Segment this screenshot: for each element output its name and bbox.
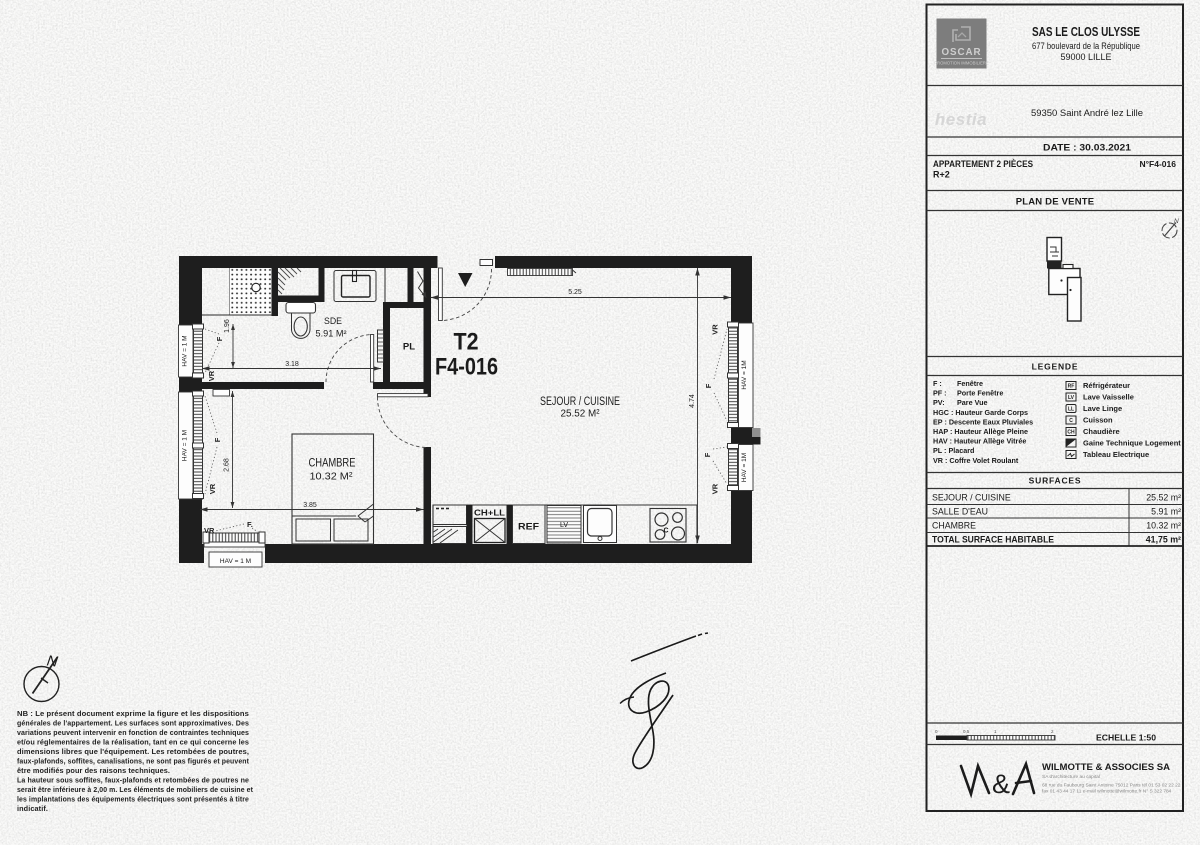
svg-text:variations peuvent intervenir: variations peuvent intervenir en fonctio… <box>17 728 249 737</box>
svg-text:10.32 M²: 10.32 M² <box>310 471 354 483</box>
svg-text:HAV = 1M: HAV = 1M <box>741 453 748 482</box>
svg-text:dimensions libres que l'équipe: dimensions libres que l'équipement. Les … <box>17 747 249 756</box>
svg-text:HAV = 1 M: HAV = 1 M <box>220 558 251 565</box>
svg-text:2.68: 2.68 <box>224 458 231 472</box>
svg-text:LEGENDE: LEGENDE <box>1032 362 1079 372</box>
svg-text:SEJOUR / CUISINE: SEJOUR / CUISINE <box>932 493 1011 503</box>
svg-text:CHAMBRE: CHAMBRE <box>309 458 356 470</box>
svg-text:SEJOUR / CUISINE: SEJOUR / CUISINE <box>540 396 620 408</box>
svg-text:PL: PL <box>403 342 415 353</box>
svg-text:LL: LL <box>1068 407 1074 413</box>
svg-text:DATE : 30.03.2021: DATE : 30.03.2021 <box>1043 143 1132 154</box>
svg-text:VR: VR <box>207 370 216 381</box>
svg-text:CH+LL: CH+LL <box>474 509 505 518</box>
svg-text:APPARTEMENT 2 PIÈCES: APPARTEMENT 2 PIÈCES <box>933 159 1033 169</box>
svg-text:F.: F. <box>247 520 253 529</box>
svg-text:les implantations des équipeme: les implantations des équipements électr… <box>17 795 249 804</box>
svg-text:HAV = 1 M: HAV = 1 M <box>182 430 189 461</box>
svg-text:générales de l'appartement. Le: générales de l'appartement. Les surfaces… <box>17 719 249 728</box>
svg-text:serait être inférieure à 2,00: serait être inférieure à 2,00 m. Les élé… <box>17 785 253 794</box>
svg-text:VR: VR <box>208 483 217 494</box>
svg-text:HAV = 1 M: HAV = 1 M <box>182 335 189 366</box>
svg-text:Lave Vaisselle: Lave Vaisselle <box>1083 393 1134 402</box>
svg-text:5.91 m²: 5.91 m² <box>1151 507 1181 517</box>
svg-text:F4-016: F4-016 <box>435 354 498 381</box>
svg-text:0,5: 0,5 <box>963 729 970 734</box>
svg-text:NB : Le présent document expri: NB : Le présent document exprime la figu… <box>17 709 249 718</box>
svg-text:PLAN DE VENTE: PLAN DE VENTE <box>1016 197 1095 208</box>
svg-text:3.85: 3.85 <box>303 502 317 509</box>
svg-text:TOTAL SURFACE HABITABLE: TOTAL SURFACE HABITABLE <box>932 535 1054 545</box>
svg-text:Tableau Electrique: Tableau Electrique <box>1083 450 1149 459</box>
svg-text:&: & <box>992 769 1010 799</box>
svg-text:PROMOTION IMMOBILIERE: PROMOTION IMMOBILIERE <box>934 61 989 66</box>
svg-text:C: C <box>1069 418 1073 424</box>
svg-text:Cuisson: Cuisson <box>1083 416 1113 425</box>
svg-text:VR: VR <box>711 483 720 494</box>
svg-text:HAV : Hauteur Allège Vitrée: HAV : Hauteur Allège Vitrée <box>933 437 1026 446</box>
svg-text:59350 Saint André lez Lille: 59350 Saint André lez Lille <box>1031 108 1143 119</box>
svg-text:SA d'architecture au capital: SA d'architecture au capital <box>1042 774 1100 780</box>
svg-text:VR: VR <box>711 324 720 335</box>
svg-text:41,75 m²: 41,75 m² <box>1146 535 1181 545</box>
svg-text:VR : Coffre Volet Roulant: VR : Coffre Volet Roulant <box>933 456 1019 465</box>
svg-text:F :Fenêtre: F :Fenêtre <box>933 379 983 388</box>
svg-text:faux-plafonds, soffites, canal: faux-plafonds, soffites, canalisations, … <box>17 757 249 766</box>
svg-text:être modifiés pour des raisons: être modifiés pour des raisons technique… <box>17 766 170 775</box>
svg-text:Lave Linge: Lave Linge <box>1083 404 1122 413</box>
svg-text:et/ou réglementaires de la réa: et/ou réglementaires de la réalisation, … <box>17 738 249 747</box>
svg-text:PV:Pare Vue: PV:Pare Vue <box>933 398 988 407</box>
svg-text:REF: REF <box>518 522 540 532</box>
svg-text:indicatif.: indicatif. <box>17 804 48 813</box>
svg-text:RF: RF <box>1068 384 1075 390</box>
svg-text:hestia: hestia <box>935 110 987 129</box>
svg-text:LV: LV <box>560 522 568 529</box>
svg-text:T2: T2 <box>454 329 479 356</box>
svg-text:HAP : Hauteur Allège Pleine: HAP : Hauteur Allège Pleine <box>933 427 1028 436</box>
svg-text:N: N <box>1174 218 1179 225</box>
svg-text:LV: LV <box>1068 395 1075 401</box>
svg-text:Chaudière: Chaudière <box>1083 427 1120 436</box>
svg-text:CHAMBRE: CHAMBRE <box>932 521 976 531</box>
svg-text:10.32 m²: 10.32 m² <box>1146 521 1181 531</box>
svg-text:WILMOTTE & ASSOCIES SA: WILMOTTE & ASSOCIES SA <box>1042 762 1170 773</box>
svg-text:25.52 M²: 25.52 M² <box>561 409 601 420</box>
svg-text:N°F4-016: N°F4-016 <box>1140 159 1177 169</box>
svg-text:SAS LE CLOS ULYSSE: SAS LE CLOS ULYSSE <box>1032 25 1140 39</box>
svg-text:La hauteur sous soffites, faux: La hauteur sous soffites, faux-plafonds … <box>17 776 249 785</box>
svg-text:5.25: 5.25 <box>568 289 582 296</box>
svg-text:R+2: R+2 <box>933 170 950 180</box>
svg-text:EP : Descente Eaux Pluviales: EP : Descente Eaux Pluviales <box>933 417 1033 426</box>
svg-text:F: F <box>213 437 222 442</box>
svg-text:68 rue du Faubourg Saint Antoi: 68 rue du Faubourg Saint Antoine 75012 P… <box>1042 783 1181 789</box>
svg-text:F: F <box>703 452 712 457</box>
svg-text:4.74: 4.74 <box>689 394 696 408</box>
svg-text:PL : Placard: PL : Placard <box>933 446 974 455</box>
svg-text:VR: VR <box>204 526 215 535</box>
svg-text:ECHELLE 1:50: ECHELLE 1:50 <box>1096 733 1156 743</box>
svg-text:HAV = 1M: HAV = 1M <box>741 360 748 389</box>
svg-text:F: F <box>215 336 224 341</box>
svg-text:3.18: 3.18 <box>285 361 299 368</box>
svg-text:677 boulevard de la République: 677 boulevard de la République <box>1032 41 1140 51</box>
svg-text:1.96: 1.96 <box>224 319 231 333</box>
svg-text:5.91 M²: 5.91 M² <box>316 329 347 339</box>
svg-text:F: F <box>704 383 713 388</box>
svg-text:PF :Porte Fenêtre: PF :Porte Fenêtre <box>933 389 1003 398</box>
svg-text:Gaine Technique Logement: Gaine Technique Logement <box>1083 439 1181 448</box>
svg-text:HGC : Hauteur Garde Corps: HGC : Hauteur Garde Corps <box>933 408 1028 417</box>
svg-text:OSCAR: OSCAR <box>942 46 982 58</box>
svg-text:Réfrigérateur: Réfrigérateur <box>1083 381 1130 390</box>
svg-text:C: C <box>663 528 668 535</box>
svg-text:59000 LILLE: 59000 LILLE <box>1060 52 1111 62</box>
svg-text:SURFACES: SURFACES <box>1029 476 1082 486</box>
svg-text:SDE: SDE <box>324 316 342 327</box>
svg-text:25.52 m²: 25.52 m² <box>1146 493 1181 503</box>
svg-text:CH: CH <box>1067 430 1075 436</box>
svg-text:fax 01 43 44 17 11 e-mail wilm: fax 01 43 44 17 11 e-mail wilmotte@wilmo… <box>1042 789 1172 795</box>
svg-text:SALLE D'EAU: SALLE D'EAU <box>932 507 988 517</box>
